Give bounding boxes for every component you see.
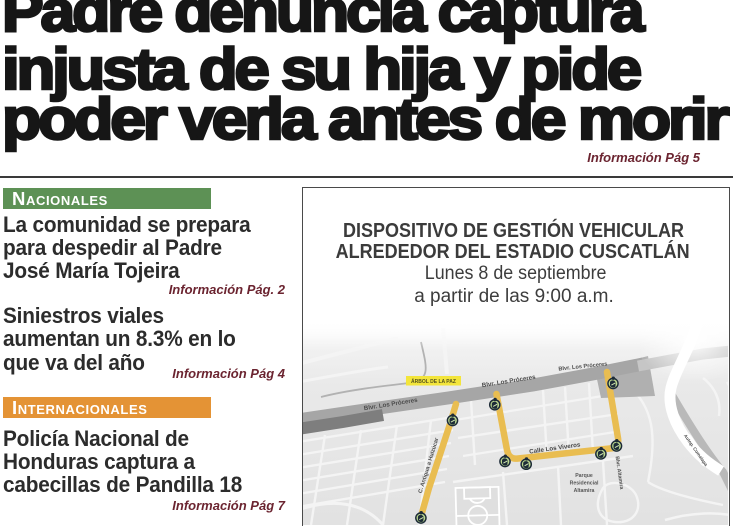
svg-text:Parque: Parque: [575, 473, 593, 479]
svg-text:Residencial: Residencial: [570, 481, 599, 487]
svg-text:Altamira: Altamira: [574, 488, 595, 494]
svg-text:ÁRBOL DE LA PAZ: ÁRBOL DE LA PAZ: [411, 378, 456, 385]
